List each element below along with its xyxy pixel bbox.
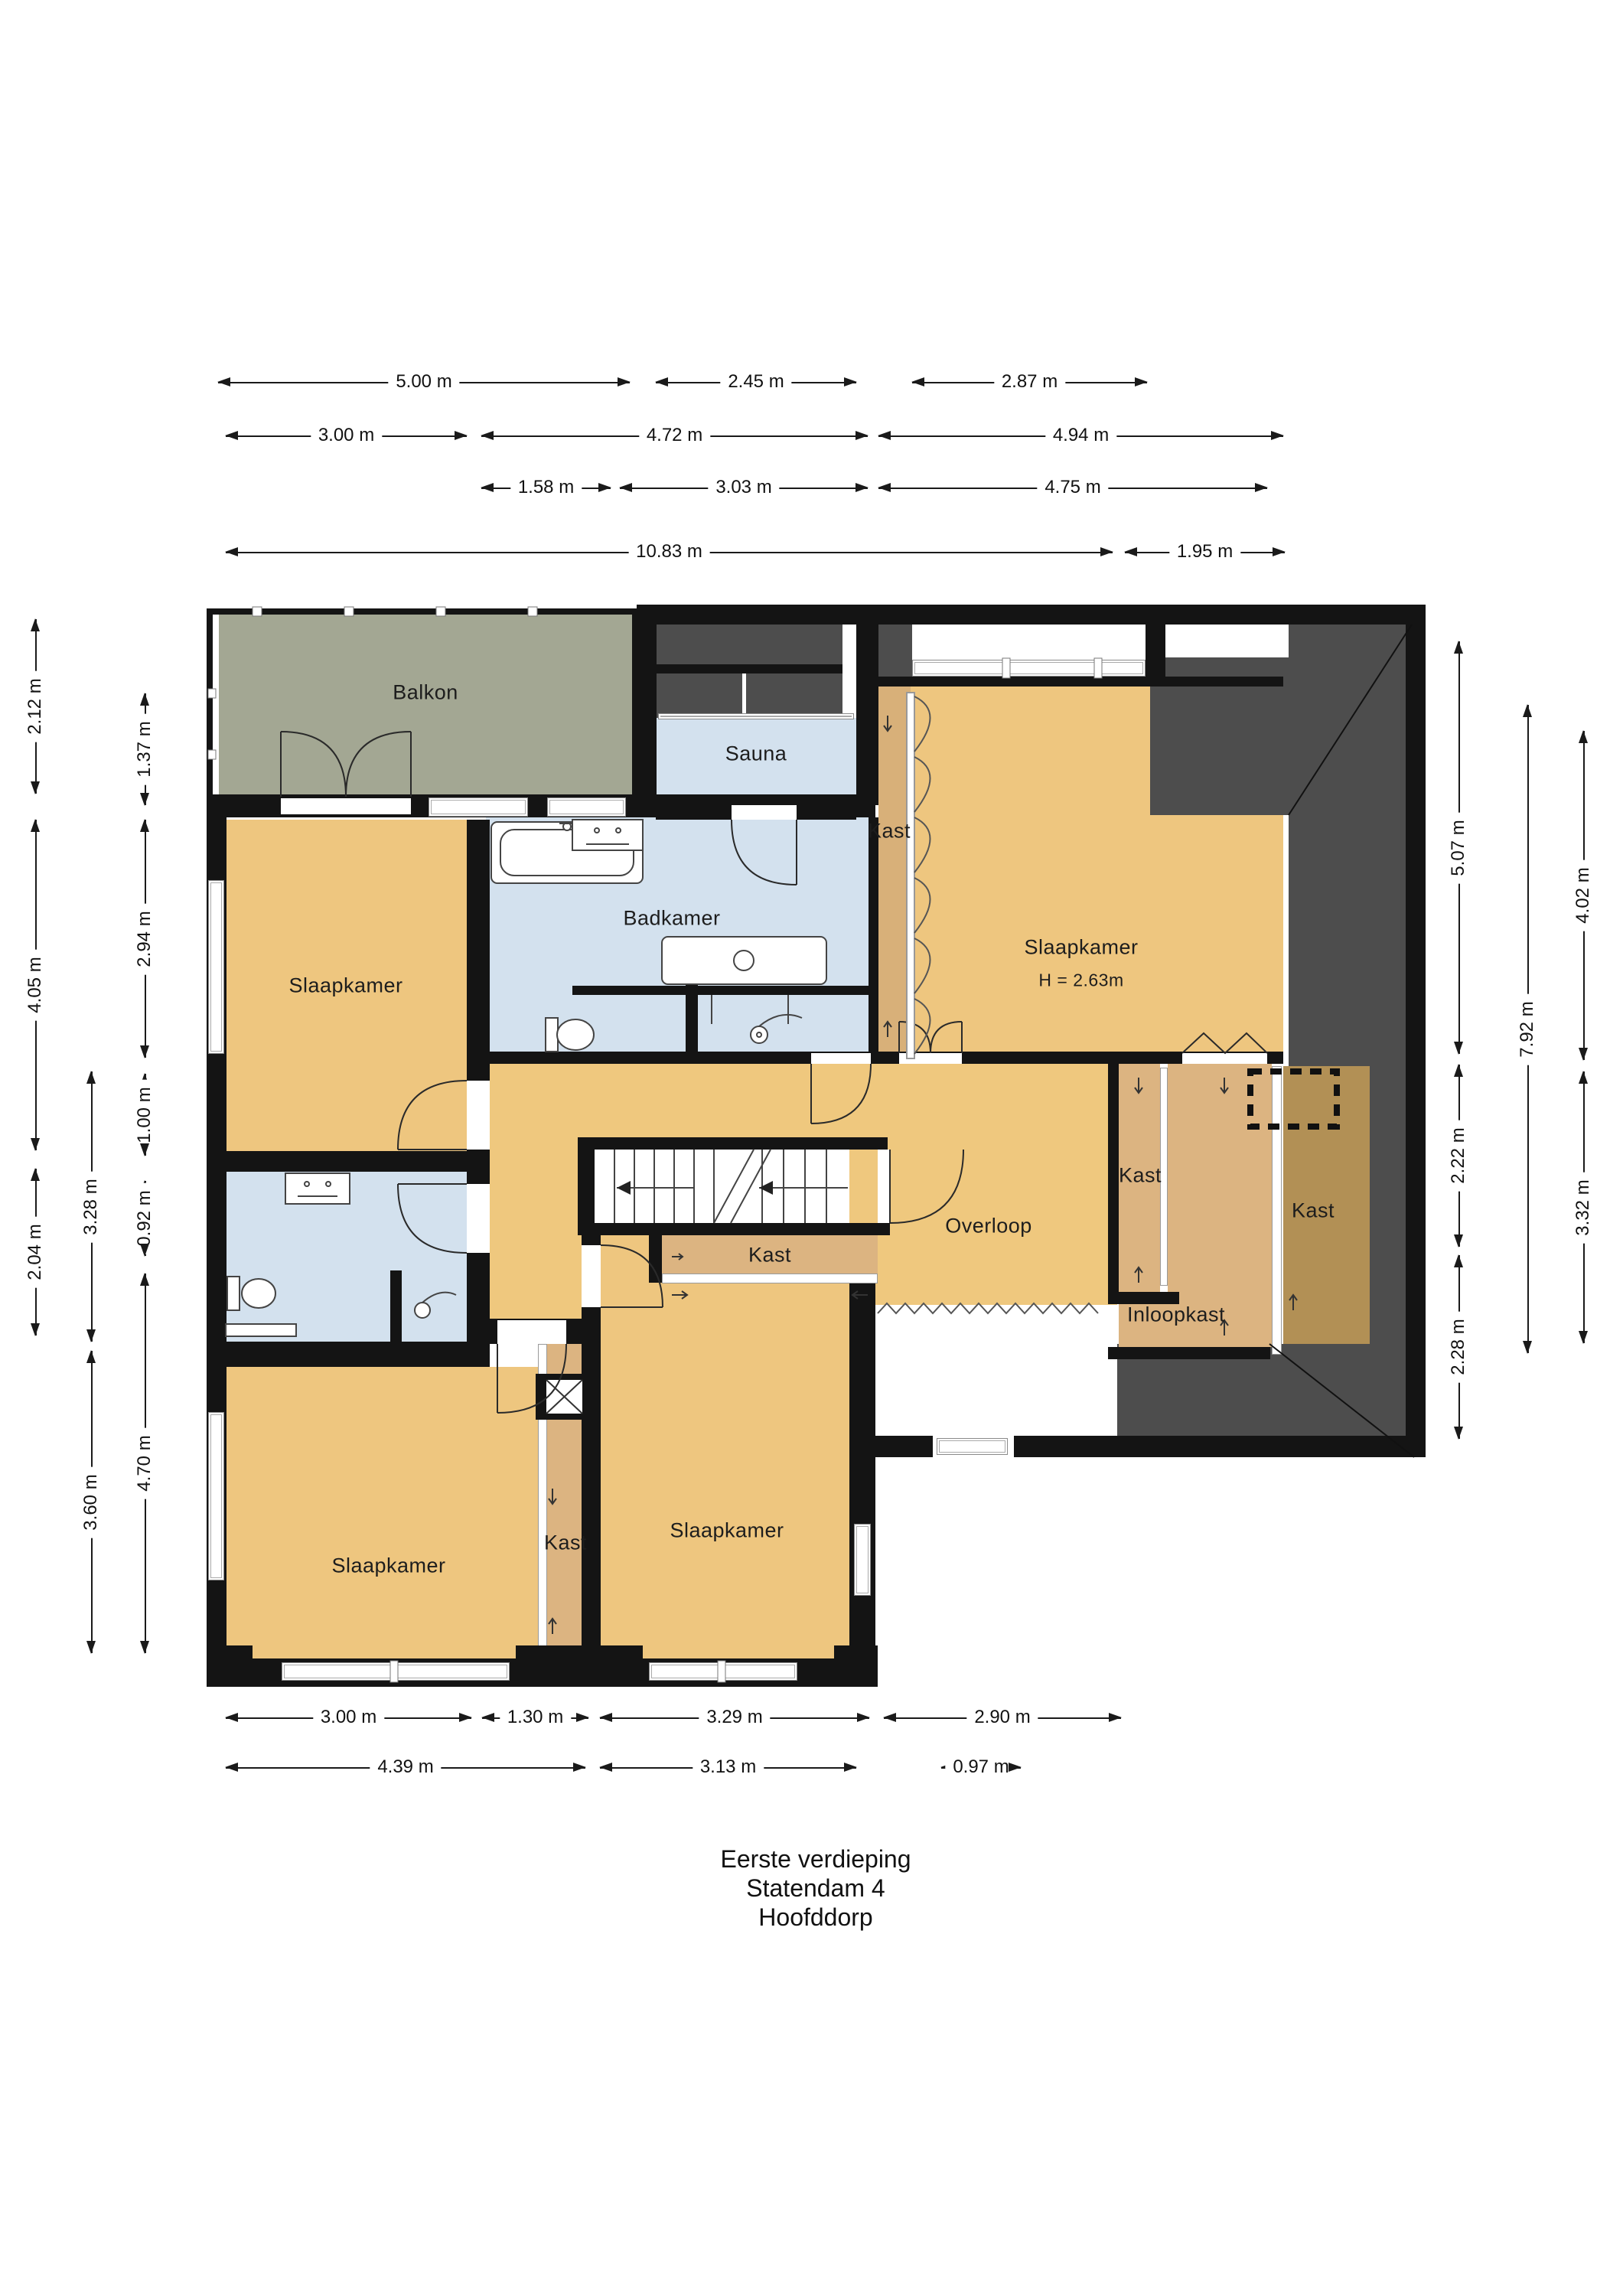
dim-label: 2.22 m: [1447, 1120, 1470, 1191]
title-line-floor: Eerste verdieping: [624, 1844, 1007, 1874]
dim-v-5: 1.37 m: [145, 693, 146, 805]
dim-label: 5.07 m: [1447, 812, 1470, 883]
dim-label: 2.87 m: [994, 370, 1065, 393]
dim-h-11: 3.00 m: [226, 1717, 471, 1719]
dim-v-13: 7.92 m: [1527, 705, 1529, 1353]
french-door-balcony: [281, 732, 411, 797]
dim-label: 2.45 m: [720, 370, 791, 393]
dim-label: 1.95 m: [1169, 540, 1240, 563]
floorplan-canvas: BalkonSlaapkamerBadkamerSaunaKastSlaapka…: [0, 0, 1623, 2296]
bifold-kast-tr: [1182, 1033, 1267, 1053]
dim-h-8: 4.75 m: [878, 488, 1267, 489]
dim-label: 4.39 m: [370, 1756, 441, 1779]
title-line-city: Hoofddorp: [624, 1903, 1007, 1932]
door-arc-bedroom-bl: [497, 1344, 566, 1413]
dim-v-6: 2.94 m: [145, 820, 146, 1058]
dim-label: 2.12 m: [24, 670, 47, 742]
folding-doors-kast-tr: [907, 693, 930, 1058]
label-slaapkamer-bc: Slaapkamer: [670, 1519, 784, 1543]
dim-label: 1.37 m: [133, 713, 156, 784]
dim-h-14: 2.90 m: [884, 1717, 1121, 1719]
dim-label: 4.02 m: [1572, 859, 1595, 931]
dim-h-0: 5.00 m: [218, 382, 630, 383]
dim-label: 2.94 m: [133, 903, 156, 974]
dim-label: 4.94 m: [1045, 424, 1116, 447]
dim-h-12: 1.30 m: [482, 1717, 588, 1719]
dim-label: 4.75 m: [1037, 476, 1108, 499]
toilet-main: [546, 1018, 594, 1052]
dim-v-8: 0.92 m: [145, 1181, 146, 1256]
dim-label: 7.92 m: [1516, 993, 1539, 1065]
dim-label: 1.00 m: [133, 1079, 156, 1150]
label-overloop: Overloop: [945, 1215, 1032, 1238]
door-arc-stairs-east: [890, 1150, 963, 1223]
dim-v-15: 3.32 m: [1583, 1071, 1585, 1343]
dim-v-12: 2.28 m: [1458, 1255, 1460, 1439]
label-sauna: Sauna: [725, 742, 787, 766]
dim-label: 2.04 m: [24, 1216, 47, 1287]
dim-label: 3.32 m: [1572, 1172, 1595, 1243]
toilet-left: [226, 1277, 296, 1336]
dim-v-2: 2.04 m: [35, 1169, 37, 1336]
label-slaapkamer-tl: Slaapkamer: [288, 974, 402, 998]
dim-label: 3.13 m: [693, 1756, 764, 1779]
label-slaapkamer-bl: Slaapkamer: [331, 1554, 445, 1578]
shower-main: [751, 1015, 802, 1043]
dim-v-3: 3.28 m: [91, 1071, 93, 1342]
door-arc-sauna: [732, 820, 797, 885]
door-arc-bedroom-tl: [398, 1081, 467, 1150]
label-slaapkamer-tr-height: H = 2.63m: [1038, 970, 1123, 991]
attic-hatch: [1250, 1071, 1337, 1127]
dim-label: 1.58 m: [510, 476, 582, 499]
dim-label: 0.97 m: [945, 1756, 1016, 1779]
closet-arrows: [549, 716, 1297, 1634]
label-kast-stairs: Kast: [748, 1244, 791, 1267]
door-arc-badkamer-left: [398, 1184, 467, 1253]
dim-label: 3.03 m: [708, 476, 779, 499]
dim-label: 4.72 m: [639, 424, 710, 447]
title-line-street: Statendam 4: [624, 1874, 1007, 1903]
dim-h-2: 2.87 m: [912, 382, 1147, 383]
label-slaapkamer-tr: Slaapkamer: [1024, 936, 1138, 960]
door-arc-badkamer-main: [811, 1064, 871, 1124]
dim-h-17: 0.97 m: [941, 1767, 1021, 1769]
dim-v-4: 3.60 m: [91, 1351, 93, 1653]
dim-label: 3.00 m: [311, 424, 382, 447]
dim-label: 10.83 m: [628, 540, 710, 563]
plan-linework: [0, 0, 1623, 2296]
dim-label: 4.70 m: [133, 1427, 156, 1499]
dim-v-11: 2.22 m: [1458, 1065, 1460, 1247]
dim-h-9: 10.83 m: [226, 552, 1113, 553]
label-balkon: Balkon: [393, 681, 458, 705]
roof-hip-top-right: [1289, 625, 1412, 815]
label-badkamer-main: Badkamer: [623, 907, 720, 931]
dim-v-10: 5.07 m: [1458, 641, 1460, 1054]
shaft-x: [546, 1380, 582, 1414]
dim-label: 2.28 m: [1447, 1311, 1470, 1382]
dim-label: 3.28 m: [80, 1171, 103, 1242]
door-arc-bedroom-bc: [601, 1245, 663, 1307]
label-kast-c: Kast: [1292, 1199, 1335, 1223]
dim-label: 5.00 m: [388, 370, 459, 393]
dim-h-6: 1.58 m: [481, 488, 611, 489]
balcony-rail-posts: [208, 607, 537, 759]
dim-label: 4.05 m: [24, 949, 47, 1020]
dim-h-7: 3.03 m: [620, 488, 868, 489]
dim-label: 3.00 m: [313, 1706, 384, 1729]
washbasin-left: [285, 1173, 350, 1204]
label-kast-strip: Kast: [544, 1531, 587, 1555]
stairs: [614, 1150, 848, 1223]
roof-hip-bottom-right: [1269, 1344, 1414, 1457]
dim-v-1: 4.05 m: [35, 820, 37, 1150]
dim-v-14: 4.02 m: [1583, 731, 1585, 1060]
shower-left: [415, 1293, 456, 1318]
dim-h-1: 2.45 m: [656, 382, 856, 383]
label-inloopkast: Inloopkast: [1127, 1303, 1225, 1327]
dim-h-10: 1.95 m: [1125, 552, 1285, 553]
dim-v-9: 4.70 m: [145, 1274, 146, 1653]
dim-v-7: 1.00 m: [145, 1074, 146, 1156]
dim-h-13: 3.29 m: [600, 1717, 869, 1719]
vide-serration: [878, 1303, 1098, 1313]
dim-h-16: 3.13 m: [600, 1767, 856, 1769]
dim-v-0: 2.12 m: [35, 619, 37, 794]
label-kast-tr: Kast: [868, 820, 911, 843]
dim-h-15: 4.39 m: [226, 1767, 585, 1769]
dim-label: 0.92 m: [133, 1182, 156, 1254]
dim-h-3: 3.00 m: [226, 435, 467, 437]
dim-label: 1.30 m: [500, 1706, 571, 1729]
dim-h-4: 4.72 m: [481, 435, 868, 437]
dim-label: 2.90 m: [966, 1706, 1038, 1729]
label-kast-a: Kast: [1119, 1164, 1162, 1188]
dim-label: 3.60 m: [80, 1466, 103, 1538]
vanity-sink: [662, 937, 826, 1024]
dim-h-5: 4.94 m: [878, 435, 1283, 437]
plan-title: Eerste verdieping Statendam 4 Hoofddorp: [624, 1844, 1007, 1932]
washbasin-main: [572, 820, 643, 850]
dim-label: 3.29 m: [699, 1706, 770, 1729]
